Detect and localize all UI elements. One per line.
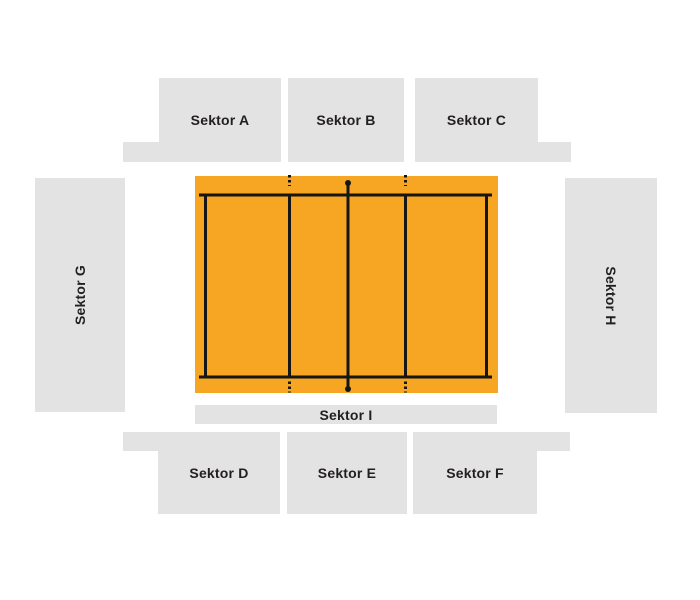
sector-g[interactable]: Sektor G [35,178,125,412]
sector-f-step[interactable] [537,432,570,451]
sector-b[interactable]: Sektor B [288,78,404,162]
sector-i[interactable]: Sektor I [195,405,497,424]
sector-g-label: Sektor G [72,265,88,325]
sector-i-label: Sektor I [320,407,373,423]
sector-c-label: Sektor C [447,112,506,128]
sector-c[interactable]: Sektor C [415,78,538,162]
sector-d-label: Sektor D [189,465,248,481]
sector-f[interactable]: Sektor F [413,432,537,514]
volleyball-court [195,176,498,393]
sector-h-label: Sektor H [603,266,619,325]
sector-f-label: Sektor F [446,465,504,481]
sector-d-step[interactable] [123,432,158,451]
sector-h[interactable]: Sektor H [565,178,657,413]
sector-b-label: Sektor B [316,112,375,128]
sector-a-step[interactable] [123,142,159,162]
sector-e-label: Sektor E [318,465,376,481]
sector-d[interactable]: Sektor D [158,432,280,514]
sector-e[interactable]: Sektor E [287,432,407,514]
arena-seat-map: Sektor A Sektor B Sektor C Sektor G Sekt… [0,0,700,600]
sector-c-step[interactable] [538,142,571,162]
sector-a[interactable]: Sektor A [159,78,281,162]
sector-a-label: Sektor A [191,112,250,128]
